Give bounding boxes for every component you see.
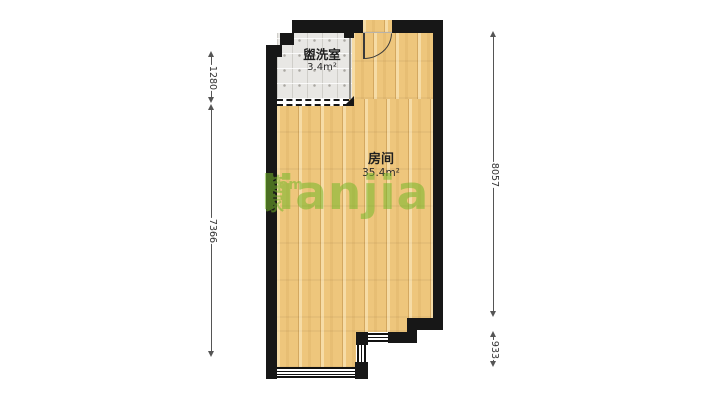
- dim-label-right-upper: 8057: [487, 162, 501, 188]
- wall-window-corner: [356, 332, 368, 345]
- window-bottom: [277, 367, 356, 378]
- room-name: 房间: [341, 153, 421, 166]
- wall-bottom-pier: [355, 362, 368, 379]
- window-right-horizontal: [367, 333, 388, 342]
- arrow-up-icon: [208, 51, 214, 57]
- arrow-down-icon: [490, 311, 496, 317]
- arrow-up-icon: [208, 104, 214, 110]
- washroom-area: 3.4m²: [282, 63, 362, 73]
- wall-jamb-washroom: [344, 31, 354, 38]
- washroom-name: 盥洗室: [282, 49, 362, 62]
- window-right-vertical: [357, 345, 366, 362]
- arrow-down-icon: [208, 351, 214, 357]
- arrow-up-icon: [490, 31, 496, 37]
- lianjia-watermark: Lianjia 链家 .com: [261, 170, 265, 176]
- arrow-up-icon: [490, 331, 496, 337]
- arrow-down-icon: [490, 361, 496, 367]
- wall-step-upper: [280, 33, 294, 45]
- lianjia-logo-tld: .com: [265, 178, 303, 192]
- dim-label-left-lower: 7366: [205, 218, 219, 244]
- floorplan-canvas: 盥洗室 3.4m² 房间 35.4m² 1280 7366 8057 933 L…: [0, 0, 710, 400]
- dashed-opening: [277, 99, 349, 106]
- wall-bottom-right-step-3: [388, 332, 417, 343]
- wall-right: [433, 20, 443, 330]
- wood-floor-lower: [277, 318, 407, 332]
- wood-floor-bottom: [277, 332, 356, 368]
- arrow-down-icon: [208, 97, 214, 103]
- dim-label-right-lower: 933: [487, 340, 501, 360]
- dim-label-left-upper: 1280: [205, 65, 219, 91]
